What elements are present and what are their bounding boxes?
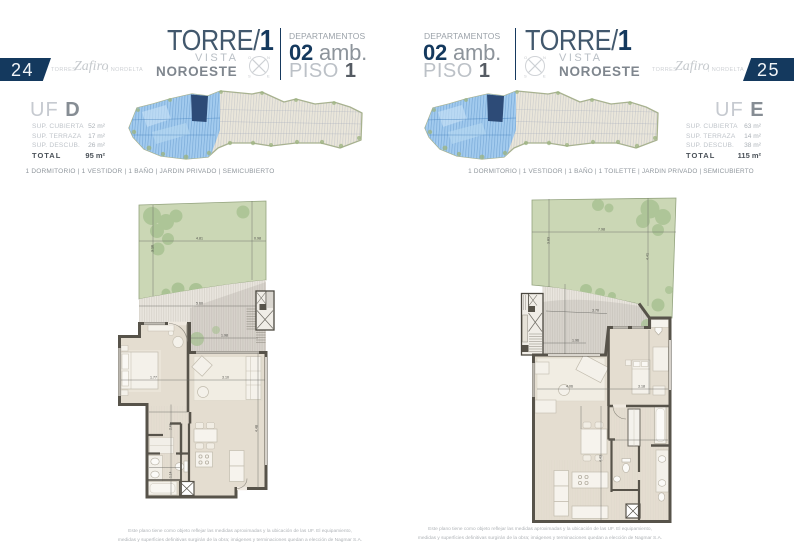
svg-text:3.83: 3.83 [547, 237, 551, 244]
svg-text:4.06: 4.06 [566, 385, 573, 389]
svg-text:4.43: 4.43 [599, 455, 603, 462]
svg-text:3.70: 3.70 [592, 309, 599, 313]
svg-text:3.18: 3.18 [638, 385, 645, 389]
svg-text:7.98: 7.98 [598, 228, 605, 232]
svg-text:4.41: 4.41 [646, 253, 650, 260]
svg-text:1.96: 1.96 [572, 339, 579, 343]
